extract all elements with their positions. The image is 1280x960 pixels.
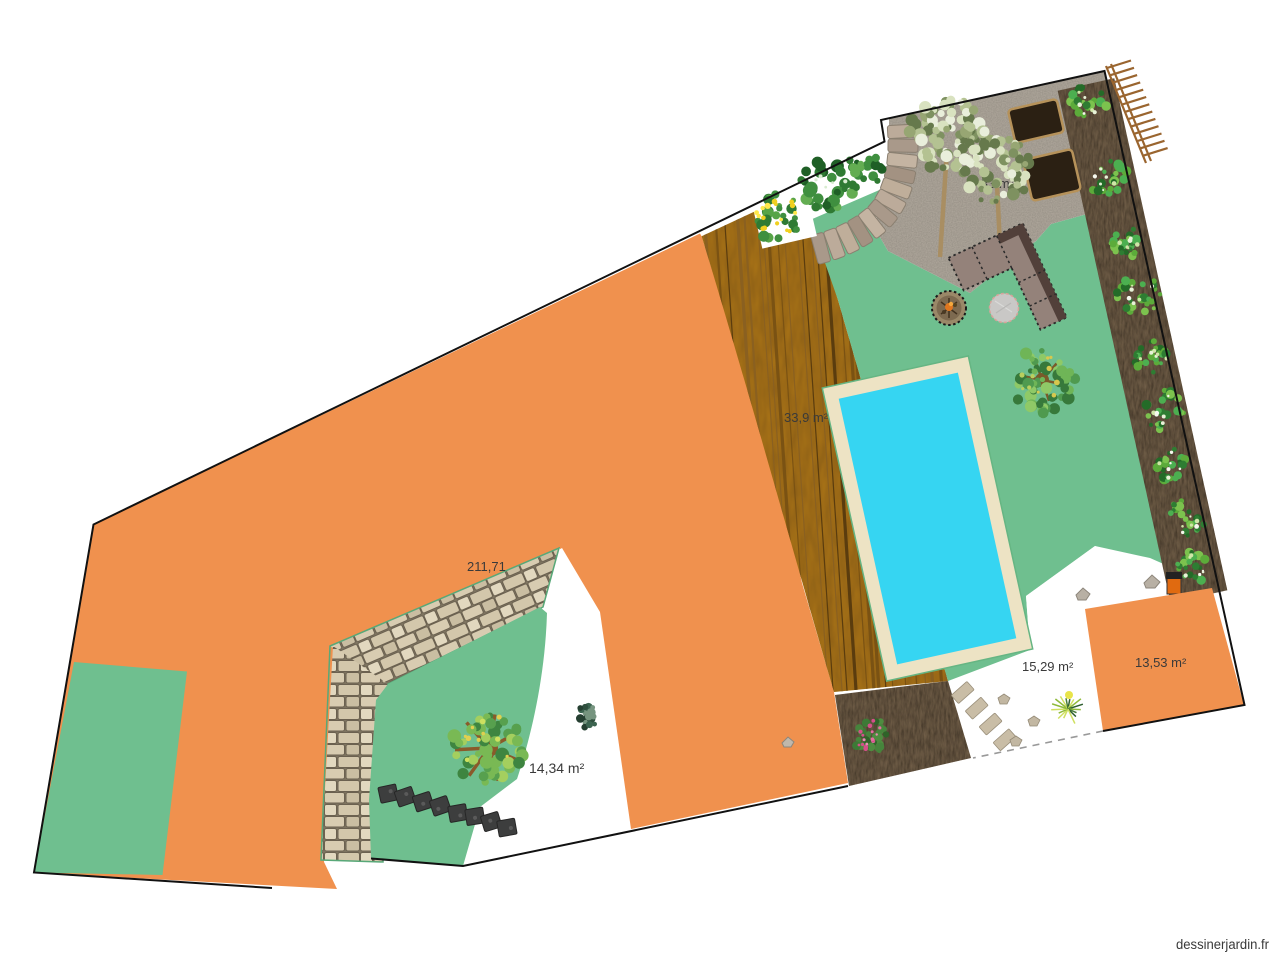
svg-text:211,71: 211,71 bbox=[467, 559, 506, 574]
svg-text:15,29 m²: 15,29 m² bbox=[1022, 659, 1074, 674]
svg-text:14,34 m²: 14,34 m² bbox=[529, 760, 585, 776]
svg-text:dessinerjardin.fr: dessinerjardin.fr bbox=[1176, 937, 1269, 952]
svg-text:13,53 m²: 13,53 m² bbox=[1135, 655, 1187, 670]
svg-text:33,9 m²: 33,9 m² bbox=[784, 410, 829, 425]
